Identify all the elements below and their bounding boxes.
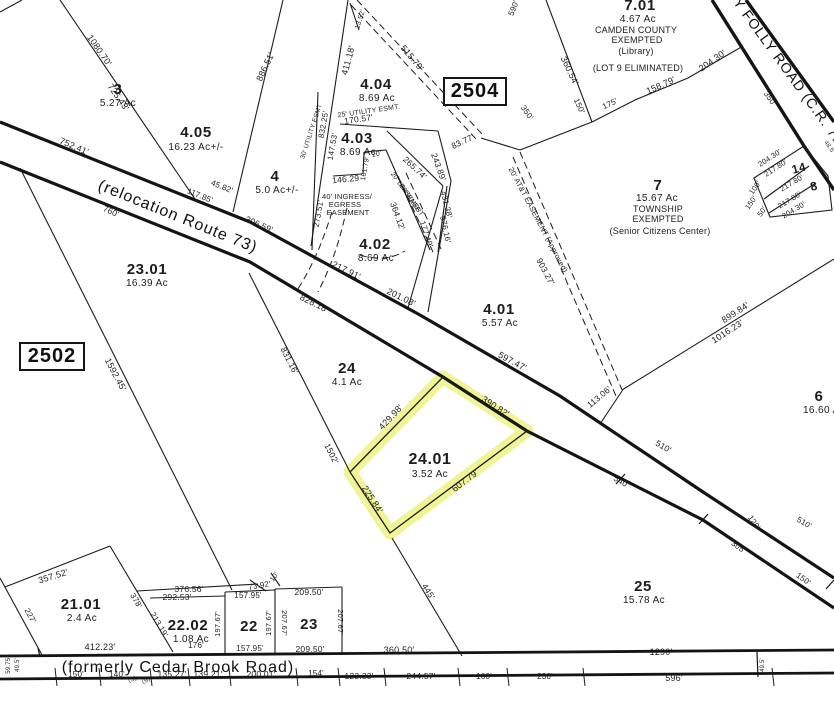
dimension-label: 590': [507, 0, 521, 17]
parcel-8-label: 8: [809, 178, 820, 193]
parcel-note: EXEMPTED: [611, 35, 662, 45]
dimension-label: 1080.70': [85, 33, 114, 68]
dimension-label: 350': [762, 90, 779, 108]
parcel-4.02-acreage: 8.69 Ac: [358, 253, 394, 264]
parcel-22-label: 22: [240, 618, 258, 635]
dimension-label: 305': [729, 539, 747, 556]
parcel-4.04-acreage: 8.69 Ac: [359, 93, 395, 104]
dimension-label: 378': [128, 592, 144, 610]
parcel-25-acreage: 15.78 Ac: [623, 595, 665, 606]
dimension-label: 411.18': [339, 44, 356, 76]
parcel-note: CAMDEN COUNTY: [595, 25, 677, 35]
dimension-label: 903.27': [534, 256, 557, 286]
parcel-23-label: 23: [300, 616, 318, 633]
dimension-label: 20': [371, 150, 382, 159]
dimension-label: 150': [68, 670, 84, 679]
dimension-label: 158.79': [645, 74, 677, 96]
dimension-label: 13.52': [354, 9, 367, 30]
dimension-label: 510': [654, 438, 674, 455]
dimension-label: 752.41': [58, 136, 90, 157]
dimension-label: 161.79': [360, 156, 371, 181]
block-2502-box: 2502: [19, 342, 85, 371]
parcel-4-label: 4: [271, 168, 280, 185]
parcel-6-label: 6: [815, 388, 824, 405]
dimension-label: 139.21': [193, 669, 222, 679]
dimension-label: 357.52': [37, 567, 69, 586]
dimension-label: 217.80': [778, 172, 805, 193]
parcel-21.01-acreage: 2.4 Ac: [67, 613, 97, 624]
dimension-label: 243.89': [429, 152, 448, 183]
dimension-label: 350': [519, 104, 536, 122]
parcel-23.01-acreage: 16.39 Ac: [126, 278, 168, 289]
parcel-note: (Library): [618, 46, 653, 56]
dimension-label: 360.54': [559, 55, 581, 87]
dimension-label: 45.82': [210, 178, 235, 195]
parcel-4.02-label: 4.02: [359, 236, 391, 253]
parcel-note: (LOT 9 ELIMINATED): [593, 63, 683, 73]
dimension-label: 1502': [322, 442, 341, 466]
dimension-label: 157.95': [236, 644, 264, 653]
dimension-label: 207.67': [280, 610, 289, 636]
dimension-label: 154': [308, 669, 324, 678]
dimension-label: 197.67': [264, 610, 273, 636]
dimension-label: 157.95': [234, 591, 262, 600]
dimension-label: 150': [743, 194, 759, 212]
parcel-note: TOWNSHIP: [633, 204, 683, 214]
parcel-4.01-acreage: 5.57 Ac: [482, 318, 518, 329]
dimension-label: 49.5': [760, 658, 766, 672]
parcel-24-acreage: 4.1 Ac: [332, 377, 362, 388]
dimension-label: 59.75': [6, 656, 12, 673]
parcel-4.01-label: 4.01: [483, 301, 515, 318]
dimension-label: 10': [269, 571, 280, 583]
dimension-label: 140': [109, 670, 125, 679]
dimension-label: 412.23': [85, 642, 116, 652]
parcel-22.02-label: 22.02: [168, 617, 209, 634]
dimension-label: 244.57': [406, 671, 435, 681]
dimension-label: 160': [476, 672, 492, 681]
parcel-6-acreage: 16.60 Ac: [803, 405, 834, 416]
dimension-label: 828.18': [298, 292, 330, 314]
dimension-label: 1592.45': [103, 356, 129, 392]
dimension-label: 445': [420, 582, 437, 602]
dimension-label: 886.51': [254, 51, 276, 83]
dimension-label: 760': [102, 203, 121, 219]
parcel-7.01-acreage: 4.67 Ac: [620, 14, 656, 25]
dimension-label: 207.67': [336, 609, 345, 635]
parcel-24-label: 24: [338, 360, 356, 377]
dimension-label: 230': [537, 672, 553, 681]
folly-road-name: Y FOLLY ROAD (C.R. 712): [730, 0, 834, 159]
dimension-label: 209.50': [294, 587, 323, 597]
dimension-label: 292.53': [162, 592, 191, 602]
dimension-label: 364.12': [388, 201, 407, 232]
parcel-4.05-label: 4.05: [180, 124, 212, 141]
dimension-label: 596': [665, 673, 683, 683]
parcel-25-label: 25: [634, 578, 652, 595]
dimension-label: 113.06': [585, 384, 613, 410]
parcel-24.01-label: 24.01: [408, 451, 451, 468]
dimension-label: 123.33': [344, 671, 373, 681]
dimension-label: 197.67': [213, 611, 222, 637]
dimension-label: 540': [612, 473, 632, 490]
parcel-24.01-acreage: 3.52 Ac: [412, 469, 448, 480]
dimension-label: 49.5': [15, 658, 21, 672]
parcel-4.03-label: 4.03: [341, 130, 373, 147]
dimension-label: 306.59': [244, 214, 275, 235]
dimension-label: 150': [572, 97, 587, 115]
parcel-21.01-label: 21.01: [61, 596, 102, 613]
tax-map: 35.27 Ac4.0516.23 Ac+/-45.0 Ac+/-4.048.6…: [0, 0, 834, 720]
parcel-note: EXEMPTED: [632, 214, 683, 224]
dimension-label: 146.29: [332, 173, 360, 186]
tax-map-canvas: 35.27 Ac4.0516.23 Ac+/-45.0 Ac+/-4.048.6…: [0, 0, 834, 720]
parcel-4.05-acreage: 16.23 Ac+/-: [168, 142, 223, 153]
dimension-label: 1290': [650, 647, 673, 657]
dimension-label: 204.30': [697, 48, 728, 74]
parcel-note: (Senior Citizens Center): [610, 226, 711, 236]
parcel-7-acreage: 15.67 Ac: [636, 193, 678, 204]
dimension-label: 510': [795, 515, 813, 531]
dimension-label: 209.50': [295, 644, 324, 654]
dimension-label: 831.16': [279, 345, 301, 376]
parcel-4.04-label: 4.04: [360, 76, 392, 93]
dimension-label: 83.77': [450, 132, 476, 151]
dimension-label: EASEMENT: [327, 208, 370, 217]
parcel-4-acreage: 5.0 Ac+/-: [255, 185, 298, 196]
dimension-label: 360.50': [384, 645, 415, 655]
dimension-label: 50': [755, 204, 769, 218]
dimension-label: 135.27': [157, 669, 186, 679]
dimension-label: 176': [188, 641, 204, 650]
dimension-label: 515.79': [399, 43, 426, 73]
dimension-label: 200.01': [246, 669, 275, 679]
parcel-7.01-label: 7.01: [624, 0, 656, 14]
parcel-7-label: 7: [654, 177, 663, 194]
parcel-23.01-label: 23.01: [127, 261, 168, 278]
block-2504-box: 2504: [443, 77, 507, 106]
